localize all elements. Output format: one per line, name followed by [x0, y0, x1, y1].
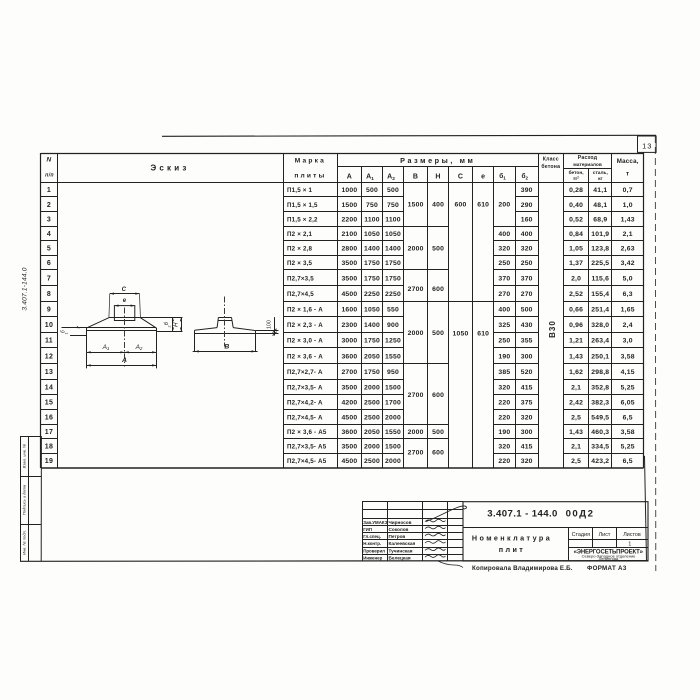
- svg-text:355: 355: [521, 338, 533, 345]
- svg-text:п/п: п/п: [45, 173, 54, 179]
- svg-text:375: 375: [521, 400, 533, 407]
- svg-text:225,5: 225,5: [591, 260, 609, 267]
- svg-text:600: 600: [432, 286, 444, 293]
- svg-text:2100: 2100: [341, 231, 357, 238]
- svg-text:2050: 2050: [364, 353, 380, 360]
- svg-text:1050: 1050: [364, 231, 380, 238]
- svg-text:19: 19: [45, 458, 53, 465]
- svg-text:10: 10: [45, 322, 53, 329]
- svg-text:328,0: 328,0: [591, 322, 609, 329]
- svg-text:1500: 1500: [385, 444, 401, 451]
- svg-text:500: 500: [366, 187, 378, 194]
- svg-text:7: 7: [47, 275, 51, 282]
- svg-text:12: 12: [45, 353, 53, 360]
- svg-text:0,7: 0,7: [623, 187, 633, 194]
- svg-text:1750: 1750: [385, 260, 401, 267]
- svg-text:300: 300: [521, 353, 533, 360]
- svg-text:3600: 3600: [341, 353, 357, 360]
- svg-text:5: 5: [47, 246, 51, 253]
- svg-text:13: 13: [642, 142, 652, 151]
- svg-text:5,25: 5,25: [621, 444, 635, 451]
- svg-text:1700: 1700: [385, 400, 401, 407]
- svg-text:250: 250: [521, 260, 533, 267]
- svg-text:П2,7×3,5: П2,7×3,5: [287, 275, 314, 282]
- svg-text:750: 750: [366, 202, 378, 209]
- svg-text:250: 250: [498, 260, 510, 267]
- svg-text:Листов: Листов: [623, 532, 641, 538]
- svg-text:N: N: [47, 157, 52, 164]
- svg-text:549,5: 549,5: [591, 414, 609, 421]
- svg-text:3000: 3000: [341, 338, 357, 345]
- svg-text:1500: 1500: [408, 202, 424, 209]
- svg-text:1,0: 1,0: [623, 202, 633, 209]
- svg-text:250,1: 250,1: [591, 353, 609, 360]
- svg-text:600: 600: [432, 392, 444, 399]
- svg-text:610: 610: [477, 330, 489, 337]
- svg-text:2500: 2500: [364, 400, 380, 407]
- svg-text:е: е: [123, 298, 127, 304]
- svg-text:Номенклатура: Номенклатура: [472, 534, 552, 543]
- svg-text:плиты: плиты: [294, 173, 326, 180]
- svg-text:1100: 1100: [385, 216, 401, 223]
- svg-text:390: 390: [521, 187, 533, 194]
- svg-text:155,4: 155,4: [591, 291, 609, 298]
- svg-text:4,15: 4,15: [621, 369, 635, 376]
- svg-text:11: 11: [45, 338, 53, 345]
- svg-text:415: 415: [521, 385, 533, 392]
- svg-text:3: 3: [47, 216, 51, 223]
- svg-text:1000: 1000: [341, 187, 357, 194]
- svg-text:16: 16: [45, 414, 53, 421]
- svg-text:2000: 2000: [408, 330, 424, 337]
- svg-text:П2,7×3,5- А5: П2,7×3,5- А5: [287, 444, 327, 451]
- svg-text:1100: 1100: [364, 216, 380, 223]
- svg-text:Н: Н: [173, 322, 179, 327]
- svg-text:550: 550: [387, 307, 399, 314]
- svg-text:3,58: 3,58: [621, 353, 635, 360]
- svg-text:2700: 2700: [408, 392, 424, 399]
- svg-text:3.407.1-144.0: 3.407.1-144.0: [22, 267, 29, 310]
- svg-text:1750: 1750: [364, 338, 380, 345]
- svg-text:П1,5 × 2,2: П1,5 × 2,2: [287, 216, 318, 223]
- svg-text:Эскиз: Эскиз: [150, 164, 189, 173]
- svg-text:500: 500: [387, 187, 399, 194]
- svg-text:423,2: 423,2: [591, 458, 609, 465]
- svg-text:Марка: Марка: [295, 158, 326, 165]
- svg-text:41,1: 41,1: [593, 187, 607, 194]
- svg-text:Стадия: Стадия: [572, 532, 590, 538]
- svg-text:2000: 2000: [364, 444, 380, 451]
- svg-text:2500: 2500: [364, 458, 380, 465]
- svg-text:2,52: 2,52: [569, 291, 583, 298]
- svg-text:1,43: 1,43: [569, 353, 583, 360]
- svg-text:А: А: [347, 174, 352, 181]
- svg-text:П2,7×2,7- А: П2,7×2,7- А: [287, 369, 323, 376]
- svg-text:Класс: Класс: [543, 157, 559, 163]
- svg-text:0,96: 0,96: [569, 322, 583, 329]
- svg-text:2250: 2250: [385, 291, 401, 298]
- svg-text:0,40: 0,40: [569, 202, 583, 209]
- svg-text:Подпись и дата: Подпись и дата: [22, 484, 27, 515]
- svg-text:П2 × 3,6 - А: П2 × 3,6 - А: [287, 353, 323, 360]
- svg-text:1400: 1400: [385, 246, 401, 253]
- svg-text:П1,5 × 1,5: П1,5 × 1,5: [287, 202, 318, 209]
- svg-text:Н: Н: [435, 174, 440, 181]
- svg-text:2: 2: [168, 326, 172, 328]
- svg-text:Соколов: Соколов: [389, 527, 409, 532]
- svg-text:1,21: 1,21: [569, 338, 583, 345]
- svg-text:1550: 1550: [385, 353, 401, 360]
- svg-text:ФОРМАТ А3: ФОРМАТ А3: [587, 565, 627, 572]
- svg-text:415: 415: [521, 444, 533, 451]
- svg-text:4500: 4500: [341, 458, 357, 465]
- svg-text:190: 190: [498, 429, 510, 436]
- svg-text:385: 385: [498, 369, 510, 376]
- svg-text:бетона: бетона: [541, 163, 560, 170]
- svg-text:251,4: 251,4: [591, 307, 609, 314]
- svg-text:С: С: [458, 174, 463, 181]
- svg-text:400: 400: [432, 202, 444, 209]
- svg-text:3,0: 3,0: [623, 338, 633, 345]
- svg-text:325: 325: [498, 322, 510, 329]
- svg-text:0,66: 0,66: [569, 307, 583, 314]
- svg-text:298,8: 298,8: [591, 369, 609, 376]
- svg-text:370: 370: [498, 275, 510, 282]
- svg-text:370: 370: [521, 275, 533, 282]
- svg-text:3.407.1 - 144.0: 3.407.1 - 144.0: [487, 509, 558, 520]
- svg-text:00Д2: 00Д2: [566, 509, 595, 520]
- svg-text:4500: 4500: [341, 291, 357, 298]
- svg-text:2250: 2250: [364, 291, 380, 298]
- svg-text:2700: 2700: [408, 286, 424, 293]
- svg-text:5,25: 5,25: [621, 385, 635, 392]
- svg-text:Петров: Петров: [389, 534, 406, 539]
- svg-text:П1,5 × 1: П1,5 × 1: [287, 187, 313, 194]
- svg-text:1: 1: [47, 187, 51, 194]
- svg-text:Н.контр.: Н.контр.: [363, 541, 381, 546]
- svg-text:Расход: Расход: [578, 155, 598, 161]
- svg-text:100: 100: [266, 320, 272, 329]
- svg-text:1600: 1600: [341, 307, 357, 314]
- svg-text:2800: 2800: [341, 246, 357, 253]
- svg-text:600: 600: [432, 449, 444, 456]
- svg-text:3500: 3500: [341, 385, 357, 392]
- svg-text:2200: 2200: [341, 216, 357, 223]
- svg-text:материалов: материалов: [573, 163, 602, 168]
- svg-text:П2 × 3,0 - А: П2 × 3,0 - А: [287, 338, 323, 345]
- svg-text:610: 610: [477, 202, 489, 209]
- svg-text:П2,7×4,5- А5: П2,7×4,5- А5: [287, 458, 327, 465]
- svg-text:2,5: 2,5: [571, 414, 581, 421]
- svg-text:520: 520: [521, 369, 533, 376]
- svg-text:3500: 3500: [341, 444, 357, 451]
- svg-text:48,1: 48,1: [593, 202, 607, 209]
- svg-text:2,42: 2,42: [569, 400, 583, 407]
- svg-text:1,43: 1,43: [569, 429, 583, 436]
- svg-text:Тучинская: Тучинская: [389, 549, 413, 554]
- svg-text:1: 1: [65, 333, 69, 335]
- svg-text:123,8: 123,8: [591, 246, 609, 253]
- svg-text:2,63: 2,63: [621, 246, 635, 253]
- svg-text:101,9: 101,9: [591, 231, 609, 238]
- svg-text:П2 × 3,5: П2 × 3,5: [287, 260, 313, 267]
- svg-text:4200: 4200: [341, 400, 357, 407]
- svg-text:1,37: 1,37: [569, 260, 583, 267]
- svg-text:200: 200: [498, 202, 510, 209]
- svg-text:320: 320: [521, 246, 533, 253]
- svg-text:1500: 1500: [341, 202, 357, 209]
- svg-text:т: т: [626, 171, 629, 178]
- svg-text:П2 × 2,3 - А: П2 × 2,3 - А: [287, 322, 323, 329]
- svg-text:1: 1: [628, 542, 631, 548]
- svg-text:400: 400: [521, 231, 533, 238]
- svg-text:А: А: [121, 357, 127, 364]
- svg-text:1550: 1550: [385, 429, 401, 436]
- svg-text:Белецкая: Белецкая: [389, 555, 411, 560]
- svg-text:160: 160: [521, 216, 533, 223]
- svg-text:1500: 1500: [385, 385, 401, 392]
- svg-text:270: 270: [498, 291, 510, 298]
- svg-text:250: 250: [498, 338, 510, 345]
- svg-text:Зав.УМАКЗ: Зав.УМАКЗ: [363, 520, 388, 525]
- svg-text:300: 300: [521, 429, 533, 436]
- svg-text:430: 430: [521, 322, 533, 329]
- svg-text:2300: 2300: [341, 322, 357, 329]
- svg-text:4500: 4500: [341, 414, 357, 421]
- svg-text:750: 750: [387, 202, 399, 209]
- svg-text:Калеевская: Калеевская: [389, 541, 416, 546]
- svg-text:2,1: 2,1: [571, 385, 581, 392]
- svg-text:334,5: 334,5: [591, 444, 609, 451]
- svg-text:320: 320: [498, 246, 510, 253]
- svg-text:68,9: 68,9: [593, 216, 607, 223]
- svg-text:П2,7×4,5- А: П2,7×4,5- А: [287, 414, 323, 421]
- svg-text:400: 400: [498, 231, 510, 238]
- svg-text:Размеры, мм: Размеры, мм: [400, 156, 475, 165]
- svg-text:1400: 1400: [364, 322, 380, 329]
- svg-text:П2,7×3,5- А: П2,7×3,5- А: [287, 385, 323, 392]
- svg-text:Инженер: Инженер: [363, 555, 382, 560]
- svg-text:1750: 1750: [364, 260, 380, 267]
- svg-text:0,28: 0,28: [569, 187, 583, 194]
- svg-text:2,5: 2,5: [571, 458, 581, 465]
- svg-text:13: 13: [45, 369, 53, 376]
- svg-text:П2,7×4,5: П2,7×4,5: [287, 291, 314, 298]
- svg-text:1,05: 1,05: [569, 246, 583, 253]
- svg-text:б: б: [164, 321, 170, 325]
- svg-text:6: 6: [47, 260, 51, 267]
- svg-text:950: 950: [387, 369, 399, 376]
- svg-text:Копировала Владимирова Е.Б.: Копировала Владимирова Е.Б.: [472, 565, 573, 572]
- svg-text:В30: В30: [548, 320, 557, 338]
- svg-text:6,05: 6,05: [621, 400, 635, 407]
- svg-text:2700: 2700: [408, 449, 424, 456]
- svg-text:3500: 3500: [341, 275, 357, 282]
- svg-text:2050: 2050: [364, 429, 380, 436]
- svg-text:1750: 1750: [364, 275, 380, 282]
- svg-text:17: 17: [45, 429, 53, 436]
- svg-text:220: 220: [498, 400, 510, 407]
- svg-text:220: 220: [498, 414, 510, 421]
- svg-text:3,58: 3,58: [621, 429, 635, 436]
- svg-text:0,84: 0,84: [569, 231, 583, 238]
- svg-text:Инв. № подл.: Инв. № подл.: [22, 530, 27, 555]
- svg-text:320: 320: [498, 385, 510, 392]
- svg-text:С: С: [122, 287, 127, 293]
- svg-text:115,6: 115,6: [591, 275, 609, 282]
- svg-text:460,3: 460,3: [591, 429, 609, 436]
- svg-text:Масса,: Масса,: [617, 158, 639, 165]
- svg-text:1750: 1750: [364, 369, 380, 376]
- svg-text:2500: 2500: [364, 414, 380, 421]
- svg-text:1,62: 1,62: [569, 369, 583, 376]
- svg-text:3,42: 3,42: [621, 260, 635, 267]
- svg-text:320: 320: [521, 458, 533, 465]
- svg-text:2,4: 2,4: [623, 322, 633, 329]
- svg-text:П2 × 1,6 - А: П2 × 1,6 - А: [287, 307, 323, 314]
- svg-text:2700: 2700: [341, 369, 357, 376]
- svg-text:1,43: 1,43: [621, 216, 635, 223]
- svg-text:1050: 1050: [385, 231, 401, 238]
- svg-text:1050: 1050: [453, 330, 469, 337]
- svg-text:1250: 1250: [385, 338, 401, 345]
- svg-text:9: 9: [47, 307, 51, 314]
- svg-text:2000: 2000: [364, 385, 380, 392]
- svg-text:ГИП: ГИП: [363, 527, 372, 532]
- svg-text:Проверил: Проверил: [363, 549, 385, 554]
- svg-text:В: В: [224, 344, 229, 351]
- svg-text:8: 8: [47, 291, 51, 298]
- svg-text:14: 14: [45, 385, 53, 392]
- svg-text:Лист: Лист: [599, 532, 611, 538]
- svg-text:1750: 1750: [385, 275, 401, 282]
- svg-text:Гл.спец.: Гл.спец.: [363, 534, 381, 539]
- svg-text:320: 320: [521, 414, 533, 421]
- svg-text:3600: 3600: [341, 429, 357, 436]
- svg-text:190: 190: [498, 353, 510, 360]
- svg-text:3500: 3500: [341, 260, 357, 267]
- svg-text:2000: 2000: [408, 429, 424, 436]
- svg-text:0,52: 0,52: [569, 216, 583, 223]
- svg-text:600: 600: [455, 202, 467, 209]
- svg-text:500: 500: [432, 330, 444, 337]
- svg-text:П2,7×4,2- А: П2,7×4,2- А: [287, 400, 323, 407]
- svg-text:500: 500: [432, 429, 444, 436]
- svg-text:2,1: 2,1: [623, 231, 633, 238]
- svg-text:270: 270: [521, 291, 533, 298]
- svg-text:900: 900: [387, 322, 399, 329]
- svg-text:382,3: 382,3: [591, 400, 609, 407]
- svg-text:400: 400: [498, 307, 510, 314]
- svg-text:263,4: 263,4: [591, 338, 609, 345]
- svg-text:5,0: 5,0: [623, 275, 633, 282]
- svg-text:П2 × 2,1: П2 × 2,1: [287, 231, 313, 238]
- svg-text:6,5: 6,5: [623, 458, 633, 465]
- svg-text:2000: 2000: [385, 414, 401, 421]
- svg-text:2,1: 2,1: [571, 444, 581, 451]
- svg-text:352,8: 352,8: [591, 385, 609, 392]
- svg-text:сталь,: сталь,: [593, 171, 609, 176]
- svg-text:Ленинград: Ленинград: [599, 556, 619, 561]
- svg-text:220: 220: [498, 458, 510, 465]
- svg-text:плит: плит: [499, 545, 525, 554]
- svg-text:2,0: 2,0: [571, 275, 581, 282]
- svg-text:2000: 2000: [408, 245, 424, 252]
- svg-text:е: е: [481, 174, 485, 181]
- svg-text:П2 × 3,6 - А5: П2 × 3,6 - А5: [287, 429, 327, 436]
- svg-text:500: 500: [521, 307, 533, 314]
- svg-text:320: 320: [498, 444, 510, 451]
- svg-text:6,3: 6,3: [623, 291, 633, 298]
- svg-text:1400: 1400: [364, 246, 380, 253]
- svg-text:15: 15: [45, 400, 53, 407]
- svg-text:В: В: [413, 174, 418, 181]
- svg-text:кг: кг: [598, 177, 602, 182]
- svg-text:6,5: 6,5: [623, 414, 633, 421]
- svg-text:Взам. инв. №: Взам. инв. №: [22, 443, 27, 468]
- svg-text:18: 18: [45, 444, 53, 451]
- svg-text:4: 4: [47, 231, 51, 238]
- svg-text:Чирносов: Чирносов: [389, 520, 412, 525]
- svg-text:290: 290: [521, 202, 533, 209]
- svg-text:П2 × 2,8: П2 × 2,8: [287, 246, 313, 253]
- svg-text:2: 2: [47, 202, 51, 209]
- svg-text:1,65: 1,65: [621, 307, 635, 314]
- svg-text:500: 500: [432, 245, 444, 252]
- svg-text:2000: 2000: [385, 458, 401, 465]
- svg-text:1050: 1050: [364, 307, 380, 314]
